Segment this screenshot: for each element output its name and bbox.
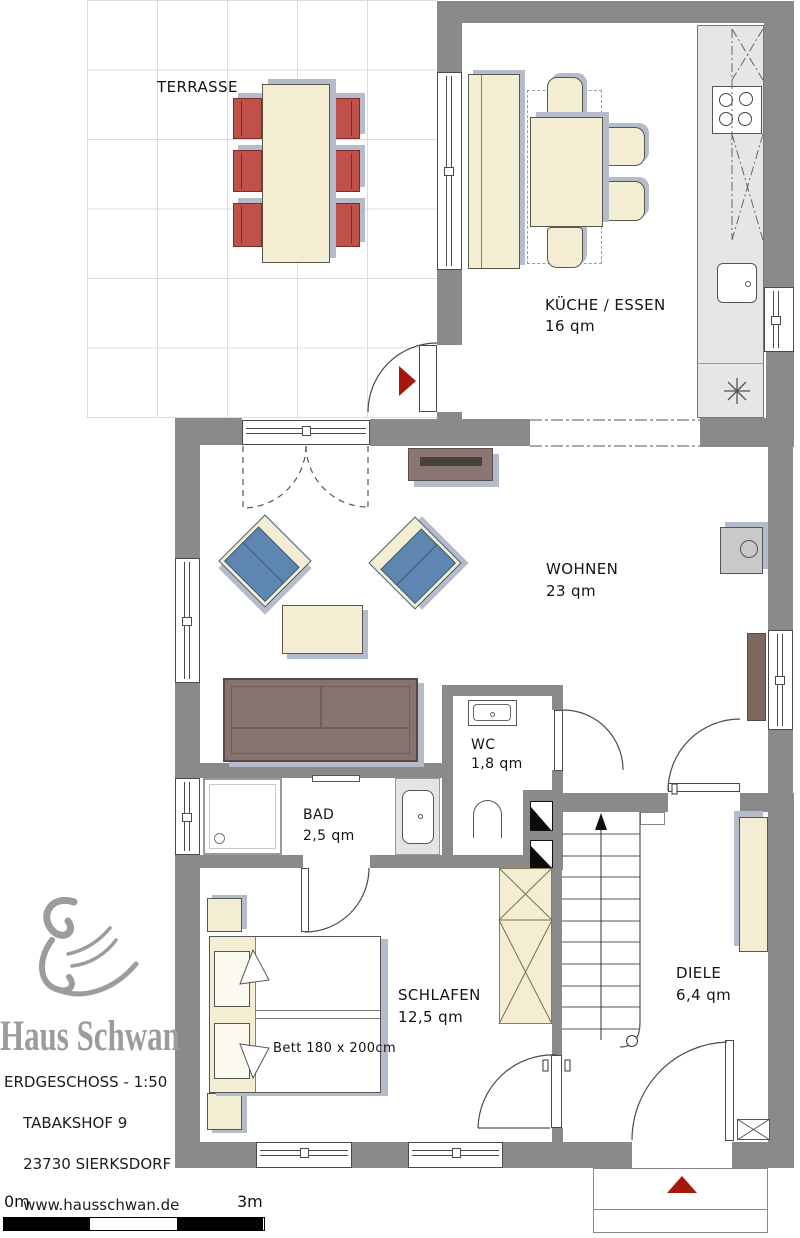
scale-bar: [3, 1217, 265, 1231]
scale-start-label: 0m: [4, 1192, 30, 1211]
wall: [352, 1142, 408, 1168]
sideboard-door-line: [481, 75, 482, 268]
floor-plan: TERRASSE KÜCHE / ESSEN 16 qm WOHNEN 23 q…: [0, 0, 800, 1238]
front-entry-arrow-icon: [667, 1176, 697, 1193]
room-label-kueche: KÜCHE / ESSEN: [545, 296, 666, 314]
dining-chair: [603, 181, 645, 221]
dining-chair: [603, 127, 645, 166]
shaft-box: [737, 1119, 770, 1140]
bath-vanity: [395, 778, 440, 855]
kitchen-sink: [717, 263, 757, 303]
room-area-schlafen: 12,5 qm: [398, 1008, 463, 1026]
chimney-flue: [530, 801, 553, 831]
staircase: [562, 812, 640, 1047]
wall: [552, 770, 563, 790]
dining-table: [530, 117, 603, 227]
terrace-chair: [233, 203, 262, 247]
open-passage-dashdot: [530, 420, 700, 446]
kitchen-entry-door-leaf: [419, 345, 437, 412]
wall: [437, 270, 462, 345]
scale-segment: [90, 1218, 177, 1230]
tap-icon: [745, 281, 751, 287]
wall: [768, 730, 793, 793]
terrace-chair: [330, 98, 360, 139]
burner-icon: [719, 112, 733, 126]
pillow: [214, 951, 250, 1007]
floor-scale-label: ERDGESCHOSS - 1:50: [4, 1073, 167, 1091]
toilet: [473, 800, 502, 838]
terrace-chair: [330, 203, 360, 247]
front-door-leaf: [725, 1040, 734, 1141]
door-handle-marks: [543, 784, 677, 1071]
living-left-window: [175, 558, 200, 683]
counter-divider: [697, 363, 764, 364]
terrace-french-door: [242, 420, 370, 445]
armchair-seat: [380, 528, 456, 604]
armchair: [218, 514, 311, 607]
stair-landing-cap: [640, 812, 665, 825]
wall: [768, 447, 793, 630]
wall: [700, 418, 772, 447]
wall: [442, 685, 563, 696]
room-area-wc: 1,8 qm: [471, 756, 523, 772]
living-right-window: [768, 630, 793, 730]
step-line: [594, 1209, 767, 1210]
drain-icon: [214, 833, 225, 844]
mattress-split: [255, 1018, 380, 1019]
mattress-split: [255, 1010, 380, 1011]
tv-lowboard: [408, 448, 493, 481]
tv-slot: [420, 457, 482, 466]
wall: [732, 1142, 794, 1168]
shower: [203, 778, 282, 855]
sofa-divider: [320, 686, 322, 728]
wood-stove: [720, 527, 763, 574]
stove-door-icon: [740, 540, 758, 558]
room-label-wc: WC: [471, 737, 495, 753]
plan-info-block: ERDGESCHOSS - 1:50 TABAKSHOF 9 23730 SIE…: [4, 1072, 179, 1238]
wall: [768, 793, 794, 1142]
wall: [437, 23, 462, 72]
wall: [503, 1142, 632, 1168]
street-label: TABAKSHOF 9: [23, 1114, 127, 1132]
wall: [175, 1142, 256, 1168]
pillow: [214, 1023, 250, 1079]
dining-chair: [547, 77, 583, 118]
bedroom-wardrobe: [499, 868, 552, 1024]
kitchen-sideboard: [468, 74, 520, 269]
drain-icon: [490, 712, 495, 717]
room-area-kueche: 16 qm: [545, 317, 595, 335]
wall: [552, 685, 563, 710]
wall: [370, 419, 530, 446]
room-label-wohnen: WOHNEN: [546, 560, 618, 578]
wall: [175, 418, 200, 558]
dining-chair: [547, 227, 583, 268]
wc-door-leaf: [554, 710, 563, 771]
burner-icon: [739, 92, 753, 106]
room-area-wohnen: 23 qm: [546, 582, 596, 600]
wall: [552, 790, 562, 1055]
swan-icon: [12, 888, 147, 1010]
scale-end-label: 3m: [237, 1192, 263, 1211]
french-door-swing-dashed: [243, 446, 368, 508]
room-label-terrasse: TERRASSE: [157, 78, 238, 96]
brand-name: Haus Schwan: [0, 1012, 180, 1061]
bath-shelf: [312, 775, 360, 782]
sofa: [223, 678, 418, 762]
chimney-flue: [530, 840, 553, 868]
armchair-seat: [224, 526, 300, 602]
burner-icon: [738, 112, 752, 126]
kitchen-counter: [697, 25, 764, 418]
armchair: [368, 516, 461, 609]
nightstand: [207, 1093, 242, 1130]
bath-door-leaf: [301, 868, 309, 932]
coffee-table: [282, 605, 363, 654]
bed-size-note: Bett 180 x 200cm: [273, 1041, 396, 1056]
scale-segment: [177, 1218, 263, 1230]
bedroom-window-1: [256, 1142, 352, 1168]
terrace-chair: [330, 150, 360, 192]
terrace-table: [262, 84, 330, 263]
website-label: www.hausschwan.de: [23, 1196, 179, 1214]
room-area-bad: 2,5 qm: [303, 828, 355, 844]
terrace-chair: [233, 98, 262, 139]
kitchen-right-window: [764, 287, 794, 352]
bedroom-door-leaf: [551, 1055, 562, 1128]
city-label: 23730 SIERKSDORF: [23, 1155, 171, 1173]
room-area-diele: 6,4 qm: [676, 986, 731, 1004]
hall-wardrobe: [739, 817, 768, 952]
wall: [442, 685, 453, 868]
burner-icon: [719, 93, 733, 107]
terrace-chair: [233, 150, 262, 192]
kitchen-window: [437, 72, 462, 270]
wall: [740, 793, 768, 812]
scale-segment: [4, 1218, 90, 1230]
room-label-bad: BAD: [303, 807, 334, 823]
wall: [175, 855, 303, 868]
entry-arrow-icon: [399, 366, 416, 396]
wall: [437, 1, 794, 23]
living-hall-door-leaf: [668, 783, 740, 792]
nightstand: [207, 898, 242, 932]
bath-window: [175, 778, 200, 855]
bedroom-window-2: [408, 1142, 503, 1168]
wall: [764, 23, 794, 287]
room-label-schlafen: SCHLAFEN: [398, 986, 481, 1004]
drain-icon: [418, 814, 423, 819]
bed: [209, 936, 381, 1093]
cooktop: [712, 86, 762, 134]
living-sideboard: [747, 633, 766, 721]
room-label-diele: DIELE: [676, 964, 721, 982]
wc-washbasin: [468, 700, 517, 726]
